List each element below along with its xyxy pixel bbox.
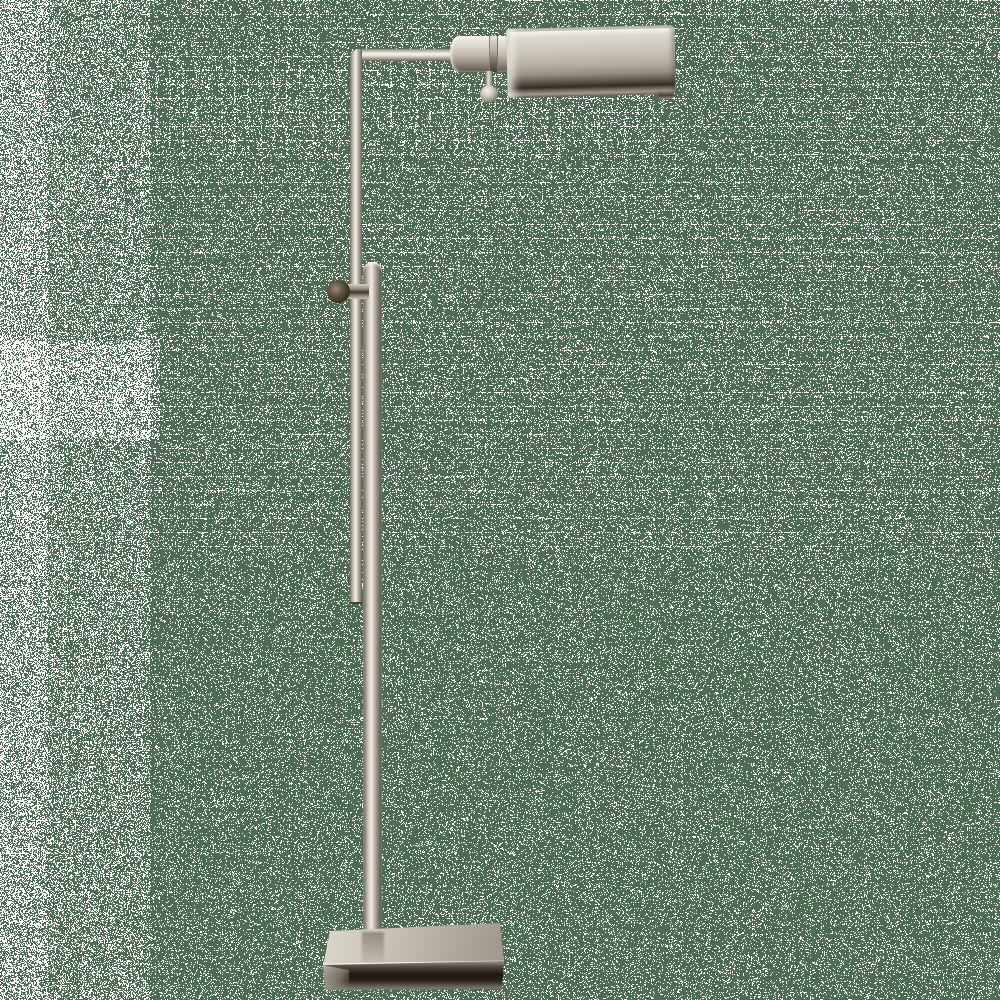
product-image <box>0 0 1000 1000</box>
pull-switch-ball <box>480 85 498 103</box>
lamp-shade <box>506 25 676 98</box>
lamp-base <box>320 918 508 992</box>
lamp-upper-pole <box>350 49 362 604</box>
lamp-shade-tab <box>658 91 674 99</box>
lamp-base-pole-reflection <box>362 932 384 964</box>
socket-seam-ring <box>489 36 498 72</box>
lamp-main-pole <box>363 262 382 959</box>
adjustment-knob <box>327 280 350 303</box>
lamp-arm <box>350 49 453 61</box>
